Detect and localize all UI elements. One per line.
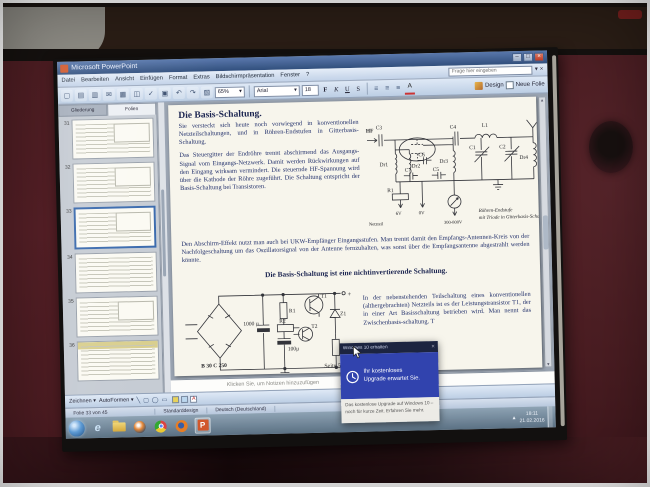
- circuit1-label-dr2: Dr2: [412, 163, 421, 169]
- question-input[interactable]: [449, 65, 533, 76]
- maximize-button[interactable]: □: [523, 53, 533, 62]
- color-tools: A: [172, 395, 197, 403]
- undo-icon[interactable]: ↶: [173, 87, 185, 99]
- minimize-button[interactable]: –: [512, 53, 522, 62]
- slide-number: 36: [66, 342, 76, 382]
- redo-icon[interactable]: ↷: [187, 87, 199, 99]
- design-button[interactable]: Design: [475, 81, 504, 90]
- line-tool-icon[interactable]: ╲: [136, 397, 140, 404]
- menu-extras[interactable]: Extras: [193, 74, 210, 80]
- open-file-icon[interactable]: ▤: [75, 89, 87, 101]
- circuit2-label-r2: R2: [279, 318, 286, 324]
- zoom-value: 65%: [218, 89, 229, 95]
- scrollbar-thumb[interactable]: [542, 215, 548, 249]
- slide-canvas[interactable]: Die Basis-Schaltung. Sie versteckt sich …: [168, 97, 542, 377]
- circuit1-label-dr4: Dr4: [519, 155, 528, 161]
- toolbar-separator: [367, 83, 368, 95]
- print-icon[interactable]: ▦: [117, 88, 129, 100]
- thumbnail-preview: [71, 118, 154, 160]
- popup-footer[interactable]: Das kostenlose Upgrade auf Windows 10 – …: [341, 397, 440, 423]
- circuit1-label-c4: C4: [450, 125, 457, 131]
- circuit1-caption-line2: mit Triode in Gitterbasis-Schaltung: [479, 214, 543, 221]
- circuit1-label-l1: L1: [482, 123, 488, 129]
- menu-datei[interactable]: Datei: [61, 77, 75, 83]
- popup-body[interactable]: Ihr kostenloses Upgrade erwartet Sie.: [340, 352, 439, 399]
- wall-background: Microsoft PowerPoint – □ × Datei Bearbei…: [3, 3, 647, 483]
- thumbnail-preview: [74, 206, 157, 250]
- chevron-down-icon: ▾: [294, 87, 297, 93]
- circuit1-label-dr3: Dr3: [439, 159, 448, 165]
- circuit2-label-100u: 100µ: [288, 346, 300, 352]
- monitor: Microsoft PowerPoint – □ × Datei Bearbei…: [53, 47, 567, 452]
- close-button[interactable]: ×: [534, 52, 544, 61]
- slide-statement: Die Basis-Schaltung ist eine nichtinvert…: [182, 264, 530, 281]
- slides-pane: Gliederung Folien 31 32: [58, 103, 164, 395]
- font-color-button[interactable]: A: [405, 81, 415, 94]
- draw-menu-button[interactable]: Zeichnen ▾: [69, 398, 96, 405]
- menu-format[interactable]: Format: [169, 75, 187, 81]
- popup-footer-line2: noch für kurze Zeit. Erfahren Sie mehr.: [345, 407, 435, 416]
- tray-clock[interactable]: 18:11 21.02.2016: [519, 411, 544, 424]
- explorer-folder-icon[interactable]: [111, 419, 127, 435]
- thumbnail-preview: [76, 296, 159, 338]
- design-icon: [475, 82, 483, 90]
- tube-circuit-figure: HF C3 Dr1 Dr2 Dr3 C4 L1 C1: [364, 115, 542, 235]
- circuit1-label-c2: C2: [499, 144, 506, 150]
- circuit1-label-c1: C1: [469, 145, 476, 151]
- slide-text-column: Sie versteckt sich heute noch vorwiegend…: [179, 119, 362, 239]
- circuit1-label-c3: C3: [376, 125, 383, 131]
- align-center-icon[interactable]: ≡: [383, 83, 392, 94]
- slide-number: 33: [63, 208, 73, 250]
- toolbar-spacer: [417, 86, 473, 87]
- chevron-down-icon: ▾: [93, 398, 96, 404]
- menubar-close-icon[interactable]: ×: [540, 65, 544, 74]
- thumbnail-preview: [77, 340, 160, 382]
- slide-thumbnail-35[interactable]: 35: [65, 296, 159, 338]
- toolbar-separator: [249, 85, 250, 97]
- slide-page-label: Seite 5: [324, 363, 341, 369]
- internet-explorer-icon[interactable]: e: [90, 419, 106, 435]
- chevron-down-icon: ▾: [131, 397, 134, 403]
- tray-up-icon[interactable]: ▲: [512, 415, 517, 421]
- slide-paragraph-1: Sie versteckt sich heute noch vorwiegend…: [179, 119, 360, 148]
- zoom-select[interactable]: 65% ▾: [215, 86, 245, 98]
- shadow-button[interactable]: S: [354, 83, 363, 94]
- photo-frame: Microsoft PowerPoint – □ × Datei Bearbei…: [0, 0, 650, 487]
- circuit2-label-r1: R1: [289, 308, 296, 314]
- slide-thumbnail-31[interactable]: 31: [60, 118, 154, 160]
- circuit1-label-c7: C7: [405, 168, 412, 174]
- work-area: Gliederung Folien 31 32: [58, 93, 555, 394]
- copy-icon[interactable]: ▣: [159, 87, 171, 99]
- scroll-down-icon[interactable]: ▼: [546, 361, 550, 366]
- slide-thumbnail-36[interactable]: 36: [66, 340, 160, 382]
- slide-thumbnail-33-selected[interactable]: 33: [63, 206, 157, 250]
- clock-icon: [345, 369, 359, 383]
- slide-area: Die Basis-Schaltung. Sie versteckt sich …: [164, 93, 554, 379]
- circuit1-label-netzteil: Netzteil: [369, 221, 384, 226]
- chrome-icon[interactable]: [152, 418, 168, 434]
- circuit1-label-0v: 0V: [419, 211, 426, 216]
- print-preview-icon[interactable]: ◫: [131, 88, 143, 100]
- power-supply-circuit-figure: B 30 C 250 1000 µ 100µ R1 R2 R3 T1: [182, 283, 356, 376]
- popup-headline: Ihr kostenloses Upgrade erwartet Sie.: [363, 367, 420, 384]
- media-player-icon[interactable]: [131, 418, 147, 434]
- circuit1-label-r1: R1: [387, 188, 394, 194]
- mouse-cursor: [353, 346, 362, 359]
- slide-paragraph-2: Das Steuergitter der Endröhre trennt abs…: [179, 148, 360, 193]
- toolbar-options-icon[interactable]: ▾: [535, 65, 538, 74]
- italic-button[interactable]: K: [332, 84, 341, 95]
- popup-close-icon[interactable]: ×: [431, 344, 435, 350]
- line-color-icon[interactable]: [181, 395, 188, 402]
- textbox-tool-icon[interactable]: ▭: [161, 396, 167, 403]
- scroll-up-icon[interactable]: ▲: [540, 97, 544, 102]
- circuit1-label-6v: 6V: [396, 212, 403, 217]
- circuit2-label-t1: T1: [321, 293, 327, 299]
- spelling-icon[interactable]: ✓: [145, 88, 157, 100]
- screen: Microsoft PowerPoint – □ × Datei Bearbei…: [57, 50, 556, 438]
- font-color-icon[interactable]: A: [190, 395, 197, 402]
- wall-round-object: [589, 121, 633, 173]
- new-file-icon[interactable]: ▢: [61, 90, 73, 102]
- font-name-select[interactable]: Arial ▾: [254, 85, 300, 97]
- circuit1-label-c5: C5: [433, 167, 440, 173]
- oval-tool-icon[interactable]: ◯: [152, 396, 159, 403]
- menu-hilfe[interactable]: ?: [306, 72, 309, 78]
- new-slide-button[interactable]: Neue Folie: [506, 80, 545, 89]
- circuit2-label-bridge: B 30 C 250: [201, 363, 227, 370]
- fill-color-icon[interactable]: [172, 396, 179, 403]
- circuit2-label-plus: +: [348, 291, 352, 298]
- rectangle-tool-icon[interactable]: ▢: [143, 396, 149, 403]
- language-indicator[interactable]: Deutsch (Deutschland): [207, 405, 275, 413]
- align-right-icon[interactable]: ≡: [394, 82, 403, 93]
- save-icon[interactable]: ▥: [89, 89, 101, 101]
- font-name-value: Arial: [257, 88, 268, 94]
- menu-ansicht[interactable]: Ansicht: [115, 76, 134, 82]
- wall-red-detail: [618, 10, 642, 19]
- notes-placeholder: Klicken Sie, um Notizen hinzuzufügen: [227, 380, 319, 388]
- font-size-value: 18: [305, 87, 311, 93]
- circuit2-label-t2: T2: [311, 324, 317, 330]
- circuit2-label-z1: Z1: [340, 311, 346, 317]
- circuit1-caption-line1: Röhren-Endstufe: [478, 208, 514, 214]
- slide-number: 31: [60, 120, 70, 160]
- new-slide-icon: [506, 81, 514, 89]
- menu-einfuegen[interactable]: Einfügen: [140, 75, 163, 82]
- circuit1-label-c6: C6: [418, 152, 425, 158]
- insert-chart-icon[interactable]: ▧: [201, 86, 213, 98]
- system-tray: ▲ 18:11 21.02.2016: [511, 406, 552, 428]
- clock-date: 21.02.2016: [520, 417, 545, 424]
- thumbnail-list: 31 32 33 34: [58, 115, 163, 395]
- autoshapes-button[interactable]: AutoFormen ▾: [99, 397, 134, 404]
- slide-thumbnail-34[interactable]: 34: [64, 252, 158, 294]
- powerpoint-taskbar-icon[interactable]: P: [194, 417, 210, 433]
- slide-number: 35: [65, 298, 75, 338]
- thumbnail-preview: [72, 162, 155, 204]
- circuit2-label-1000u: 1000 µ: [243, 321, 259, 327]
- bold-button[interactable]: F: [321, 84, 330, 95]
- design-name: Standarddesign: [155, 407, 207, 414]
- circuit1-label-dr1: Dr1: [380, 162, 389, 168]
- menu-fenster[interactable]: Fenster: [280, 72, 300, 78]
- underline-button[interactable]: U: [343, 83, 352, 94]
- circuit1-label-300-800v: 300-800V: [444, 219, 463, 224]
- thumbnail-preview: [75, 252, 158, 294]
- firefox-icon[interactable]: [173, 417, 189, 433]
- start-button[interactable]: [69, 420, 85, 436]
- show-desktop-button[interactable]: [547, 406, 552, 427]
- email-icon[interactable]: ✉: [103, 89, 115, 101]
- slide-number: 34: [64, 254, 74, 294]
- design-label: Design: [485, 82, 504, 88]
- align-left-icon[interactable]: ≡: [372, 83, 381, 94]
- menu-bearbeiten[interactable]: Bearbeiten: [81, 77, 109, 84]
- new-slide-label: Neue Folie: [516, 81, 545, 88]
- powerpoint-app-icon: [60, 64, 68, 72]
- menu-bildschirmpraesentation[interactable]: Bildschirmpräsentation: [216, 73, 275, 80]
- slide-number: 32: [61, 164, 71, 204]
- circuit1-label-hf: HF: [366, 128, 374, 134]
- chevron-down-icon: ▾: [239, 89, 242, 95]
- slide-thumbnail-32[interactable]: 32: [61, 162, 155, 204]
- font-size-select[interactable]: 18: [302, 84, 319, 95]
